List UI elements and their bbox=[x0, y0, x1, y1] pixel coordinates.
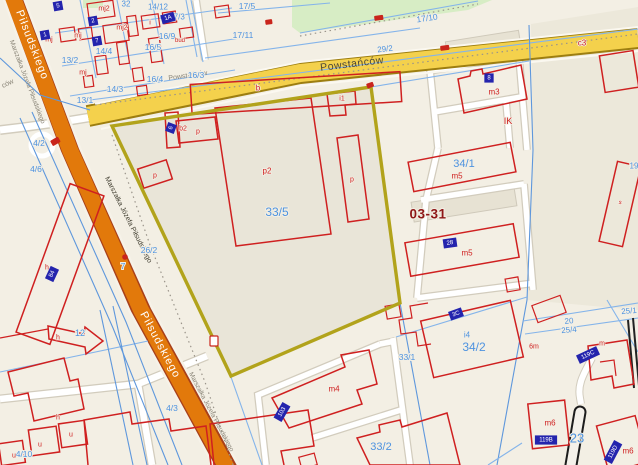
building-label: b bbox=[256, 84, 261, 93]
address-box-label: 119B bbox=[539, 437, 553, 443]
building-label: mj2 bbox=[116, 25, 127, 32]
building-label: p bbox=[350, 177, 354, 184]
address-box: 2 bbox=[88, 16, 99, 27]
parcel-label: i4 bbox=[464, 331, 471, 340]
parcel-label: 7 bbox=[121, 261, 126, 271]
parcel-label-main: 33/5 bbox=[265, 205, 289, 219]
parcel-label: 16/4 bbox=[147, 74, 164, 84]
building-label: 6m bbox=[529, 344, 539, 351]
parcel-label: 34/1 bbox=[453, 158, 474, 170]
building-label: m6 bbox=[544, 419, 556, 428]
parcel-label: 13/2 bbox=[62, 55, 79, 65]
building-label: u bbox=[69, 432, 73, 439]
building-label: mj bbox=[74, 33, 82, 40]
building-label: bud bbox=[175, 38, 185, 44]
parcel-label: 33/1 bbox=[399, 352, 416, 362]
address-box: 1 bbox=[40, 30, 51, 41]
parcel-label: 14/12 bbox=[148, 3, 169, 12]
map-viewport[interactable]: Marszałka Józefa PiłsudskiegoMarszałka J… bbox=[0, 0, 638, 465]
building-label: b2 bbox=[179, 126, 187, 133]
map-marker-icon bbox=[122, 254, 128, 260]
parcel-label: 26/2 bbox=[141, 245, 158, 255]
parcel-label: 16/5 bbox=[145, 42, 162, 52]
building-label: h bbox=[56, 335, 60, 342]
parcel-label: 14/3 bbox=[107, 84, 124, 94]
building-label: c3 bbox=[578, 39, 587, 48]
building-label: m4 bbox=[328, 385, 340, 394]
building-label: h bbox=[45, 265, 49, 272]
parcel-label: 4/6 bbox=[30, 164, 42, 174]
building-label: m5 bbox=[461, 249, 473, 258]
building-label: i1 bbox=[339, 96, 345, 103]
parcel-label: 4/3 bbox=[166, 403, 178, 413]
parcel-label: 17/11 bbox=[233, 30, 254, 40]
building-label: p bbox=[153, 173, 157, 180]
parcel-label: 25/1 bbox=[621, 306, 638, 316]
building-label: mj2 bbox=[98, 6, 109, 13]
building-label: p2 bbox=[263, 167, 272, 176]
parcel-label: 12 bbox=[75, 328, 85, 338]
map-canvas[interactable]: Marszałka Józefa PiłsudskiegoMarszałka J… bbox=[0, 0, 638, 465]
address-box: 7 bbox=[92, 36, 103, 47]
address-box: 5 bbox=[53, 1, 64, 12]
building-label: u bbox=[38, 442, 42, 449]
section-label: 03-31 bbox=[409, 207, 446, 222]
parcel-label: 4/10 bbox=[16, 449, 33, 459]
address-box: 119B bbox=[535, 435, 557, 444]
parcel-label: 34/2 bbox=[462, 340, 486, 354]
address-box: 28 bbox=[443, 237, 458, 248]
address-box: 8 bbox=[484, 73, 493, 82]
map-marker-icon bbox=[265, 19, 273, 25]
building-label: h bbox=[56, 415, 60, 422]
building-label: m3 bbox=[488, 88, 500, 97]
map-marker-icon bbox=[210, 336, 218, 346]
building-label: u bbox=[12, 453, 16, 460]
parcel-label: 17/5 bbox=[239, 1, 256, 11]
parcel-label: 13/1 bbox=[77, 95, 94, 105]
utility-symbol-label: IK bbox=[504, 116, 513, 126]
parcel-label: 4/2 bbox=[33, 138, 45, 148]
parcel-label: 19 bbox=[630, 162, 638, 171]
parcel-label: 14/4 bbox=[96, 46, 113, 56]
building-label: mj bbox=[79, 70, 87, 77]
parcel-label: 23 bbox=[570, 431, 584, 446]
building-label: m5 bbox=[451, 172, 463, 181]
parcel-label: 33/2 bbox=[370, 441, 391, 453]
parcel-label: 16/3 bbox=[188, 70, 205, 80]
building-label: p bbox=[196, 129, 200, 136]
building-label: m6 bbox=[622, 447, 634, 456]
parcel-label: 32 bbox=[122, 0, 131, 9]
building-label: m bbox=[599, 341, 605, 348]
parcel-label: 25/4 bbox=[561, 325, 578, 335]
parcel-label: 16/9 bbox=[159, 31, 176, 41]
